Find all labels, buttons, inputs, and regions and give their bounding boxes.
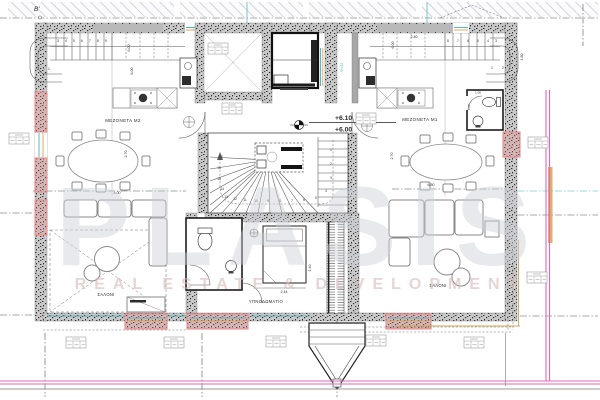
tall-cabinet	[180, 58, 197, 88]
corridor-right-wall	[352, 33, 358, 103]
dim-stair-right: 6.00	[391, 42, 395, 49]
opening-tag	[164, 337, 184, 348]
pink-wall-segment	[187, 314, 248, 329]
opening-tag	[208, 43, 228, 54]
top-wall-core	[204, 23, 310, 33]
top-window-right	[453, 23, 469, 33]
opening-tag	[9, 133, 29, 144]
stair-number: 2	[502, 66, 504, 70]
dim-stair-left-2: 6.00	[130, 68, 134, 75]
stair-number: 7	[457, 39, 459, 43]
pink-wall-segment	[503, 132, 520, 157]
unit-left-label: ΜΕΖΟΝΕΤΑ Μ2	[105, 118, 141, 123]
stair-number: 3	[57, 39, 59, 43]
stair-number: 1	[491, 66, 493, 70]
floor-plan-sheet: 1234567891011121314151617 +6.10 +6.00	[0, 0, 600, 400]
opening-tag	[66, 337, 86, 348]
level-marker: +6.10 +6.00	[290, 115, 396, 134]
stair-number: 17	[219, 155, 223, 159]
dim-left-depth: 2.70	[124, 151, 128, 158]
opening-tag	[464, 337, 484, 348]
bedroom-label: ΥΠΝΟΔΩΜΑΤΙΟ	[249, 299, 284, 304]
watermark: PLASIS REAL ESTATE & DEVELOPMENT	[56, 164, 545, 293]
pink-wall-segment	[35, 158, 47, 192]
stair-number: 9	[105, 39, 107, 43]
pink-wall-segment	[35, 200, 47, 235]
stair-number: 8	[97, 39, 99, 43]
elevator-door-mechanism	[311, 40, 317, 82]
tv-bench	[127, 297, 165, 312]
stair-number: 5	[477, 39, 479, 43]
stair-number: 4	[487, 39, 489, 43]
unit-right-label: ΜΕΖΟΝΕΤΑ Μ1	[402, 117, 438, 122]
kitchen-right	[359, 58, 433, 108]
stair-number: 3	[495, 39, 497, 43]
pink-wall-segment	[125, 314, 167, 329]
floor-plan-drawing: 1234567891011121314151617 +6.10 +6.00	[0, 0, 600, 400]
elevator-sill	[273, 84, 315, 87]
level-lower-label: +6.00	[335, 127, 352, 134]
kitchen-left	[113, 58, 197, 108]
opening-tag	[356, 113, 376, 124]
dim-wc-w: 1.00	[475, 91, 481, 95]
dim-wc-d: 1.00	[467, 104, 471, 110]
stair-number: 5	[73, 39, 75, 43]
opening-tag	[222, 103, 242, 114]
dim-stair-right-curve: 1.80	[520, 54, 524, 61]
stair-number: 2	[37, 67, 39, 71]
stair-number: 1	[48, 67, 50, 71]
stair-number: 8	[447, 39, 449, 43]
opening-tag	[366, 335, 386, 346]
watermark-subtitle: REAL ESTATE & DEVELOPMENT	[75, 276, 526, 293]
bay-projection	[309, 323, 365, 389]
bottom-wall	[43, 313, 505, 321]
left-wall-window	[35, 132, 47, 158]
level-upper-label: +6.10	[335, 115, 352, 122]
stair-top-right: 87654321	[368, 33, 518, 82]
stair-number: 6	[81, 39, 83, 43]
dim-kitchen-right: 2.40	[411, 35, 418, 39]
stair-number: 4	[65, 39, 67, 43]
adjacent-hatch-band	[0, 2, 600, 18]
stair-top-left: 123456789	[30, 33, 190, 82]
stair-number: 7	[89, 39, 91, 43]
pink-wall-segment	[35, 92, 47, 132]
opening-tag	[266, 336, 286, 347]
shaft-bottom-wall	[204, 92, 262, 100]
right-stair-numbers: 87654321	[447, 39, 504, 70]
elevator-label: Φ=42	[340, 63, 344, 72]
dim-right-depth: 2.70	[390, 153, 394, 160]
elevator-right-wall	[325, 23, 337, 103]
dim-stair-left: 6.00	[127, 45, 131, 52]
wc-right-unit	[466, 90, 503, 130]
elevator	[272, 33, 318, 90]
light-shaft	[204, 33, 262, 92]
stair-number: 1	[330, 148, 332, 152]
section-marker: B'	[34, 6, 40, 13]
tall-cabinet	[359, 58, 376, 88]
opening-tag	[528, 137, 548, 148]
watermark-title: PLASIS	[56, 164, 545, 289]
toilet	[483, 97, 501, 106]
elevator-left-wall	[262, 23, 272, 103]
stair-number: 6	[467, 39, 469, 43]
